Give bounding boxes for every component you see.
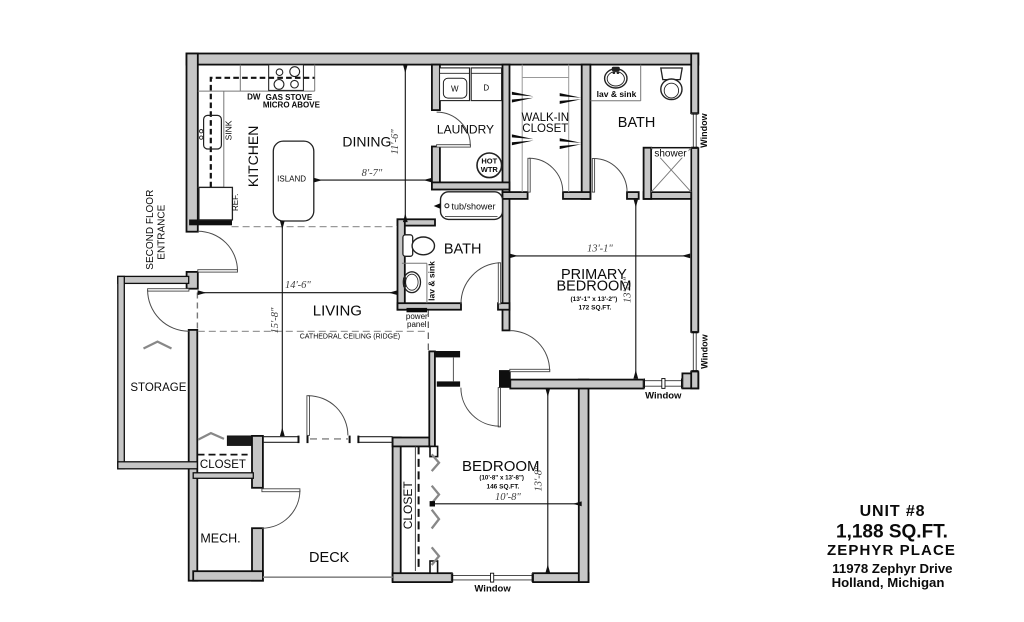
- svg-text:(10'-8" x 13'-8"): (10'-8" x 13'-8"): [479, 474, 524, 481]
- svg-text:146 SQ.FT.: 146 SQ.FT.: [486, 483, 519, 490]
- svg-text:10'-8": 10'-8": [495, 492, 521, 503]
- svg-text:LIVING: LIVING: [313, 303, 362, 320]
- svg-text:DINING: DINING: [342, 134, 391, 150]
- svg-text:BATH: BATH: [618, 115, 656, 131]
- svg-text:172 SQ.FT.: 172 SQ.FT.: [578, 305, 611, 312]
- svg-text:CLOSET: CLOSET: [401, 481, 415, 530]
- svg-text:W: W: [451, 85, 459, 94]
- svg-text:(13'-1" x 13'-2"): (13'-1" x 13'-2"): [570, 296, 617, 303]
- svg-text:shower: shower: [654, 149, 687, 160]
- svg-text:MICRO ABOVE: MICRO ABOVE: [263, 100, 321, 109]
- svg-text:13'-8": 13'-8": [534, 465, 545, 491]
- svg-text:lav & sink: lav & sink: [597, 89, 637, 99]
- svg-text:ISLAND: ISLAND: [277, 175, 306, 184]
- svg-text:SECOND FLOOR: SECOND FLOOR: [145, 190, 156, 270]
- svg-text:13'-2": 13'-2": [623, 276, 634, 302]
- svg-text:11'-6": 11'-6": [390, 129, 401, 155]
- svg-text:CLOSET: CLOSET: [522, 123, 568, 135]
- svg-text:Window: Window: [474, 584, 511, 595]
- svg-text:Window: Window: [700, 333, 710, 368]
- svg-text:tub/shower: tub/shower: [451, 201, 495, 211]
- svg-text:BATH: BATH: [444, 241, 482, 257]
- svg-text:DECK: DECK: [309, 550, 350, 566]
- svg-text:KITCHEN: KITCHEN: [245, 126, 261, 187]
- svg-text:DW: DW: [247, 92, 261, 101]
- svg-text:CLOSET: CLOSET: [200, 459, 246, 471]
- svg-text:11978 Zephyr Drive: 11978 Zephyr Drive: [832, 561, 952, 576]
- svg-text:CATHEDRAL CEILING (RIDGE): CATHEDRAL CEILING (RIDGE): [300, 334, 400, 341]
- svg-text:UNIT #8: UNIT #8: [860, 503, 926, 520]
- svg-text:ENTRANCE: ENTRANCE: [156, 204, 167, 259]
- svg-text:Holland, Michigan: Holland, Michigan: [832, 575, 945, 590]
- svg-text:REF.: REF.: [231, 194, 240, 211]
- svg-text:8'-7": 8'-7": [362, 168, 383, 179]
- svg-text:STORAGE: STORAGE: [130, 382, 186, 394]
- svg-text:1,188 SQ.FT.: 1,188 SQ.FT.: [836, 522, 948, 543]
- svg-text:BEDROOM: BEDROOM: [556, 278, 631, 294]
- svg-text:ZEPHYR PLACE: ZEPHYR PLACE: [827, 542, 956, 559]
- svg-text:panel: panel: [407, 320, 427, 329]
- svg-text:WTR: WTR: [481, 165, 499, 174]
- svg-text:D: D: [483, 84, 489, 93]
- svg-text:MECH.: MECH.: [200, 532, 240, 546]
- svg-text:lav & sink: lav & sink: [427, 261, 437, 301]
- svg-text:Window: Window: [645, 391, 682, 402]
- svg-text:LAUNDRY: LAUNDRY: [437, 123, 494, 137]
- svg-text:13'-1": 13'-1": [587, 244, 613, 255]
- svg-text:14'-6": 14'-6": [285, 280, 311, 291]
- svg-text:15'-8": 15'-8": [270, 307, 281, 333]
- svg-text:BEDROOM: BEDROOM: [462, 458, 540, 475]
- svg-text:SINK: SINK: [224, 120, 234, 140]
- svg-text:Window: Window: [699, 112, 709, 147]
